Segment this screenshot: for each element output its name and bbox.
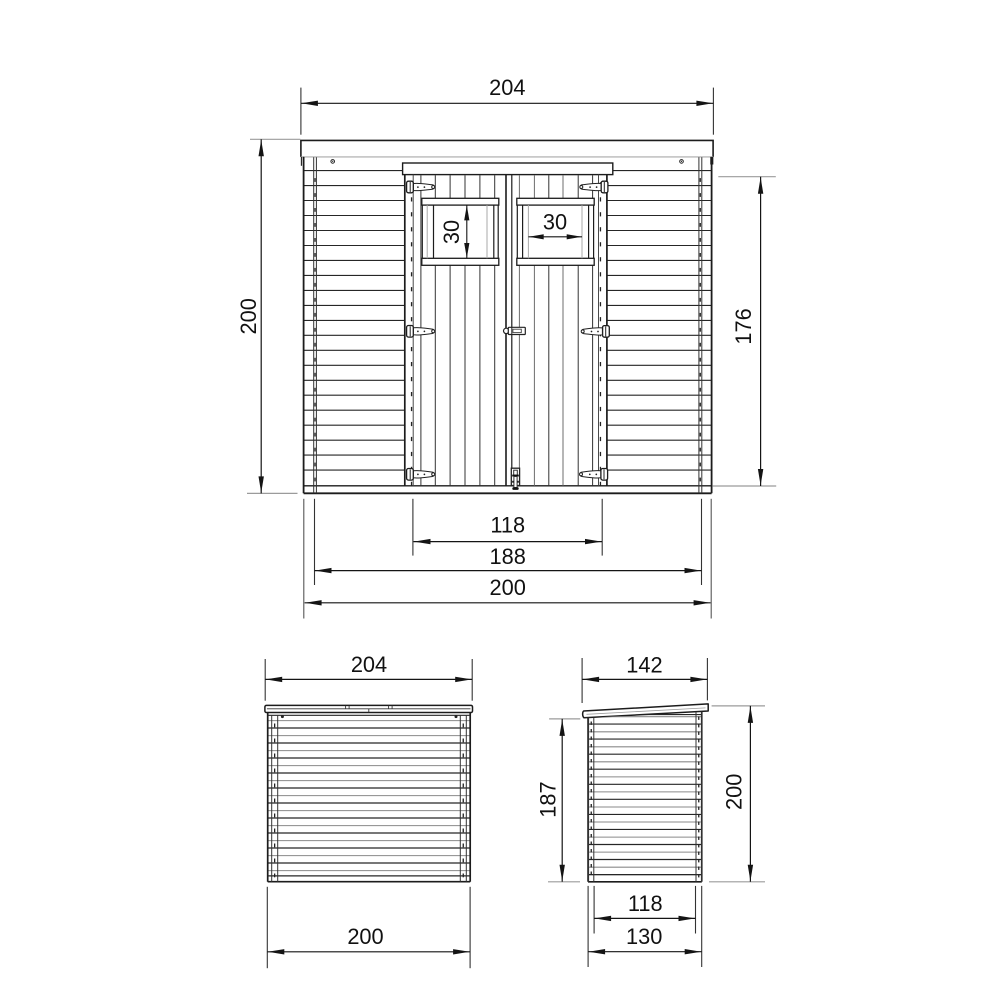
svg-text:204: 204 xyxy=(351,652,387,677)
svg-text:30: 30 xyxy=(439,220,464,244)
svg-text:187: 187 xyxy=(536,781,561,817)
svg-text:176: 176 xyxy=(731,308,756,344)
svg-text:30: 30 xyxy=(543,209,567,234)
svg-text:118: 118 xyxy=(490,513,525,538)
svg-text:200: 200 xyxy=(722,774,747,810)
svg-text:200: 200 xyxy=(347,924,383,949)
svg-text:200: 200 xyxy=(236,298,261,334)
svg-text:130: 130 xyxy=(626,924,662,949)
svg-text:200: 200 xyxy=(490,575,526,600)
svg-text:204: 204 xyxy=(489,75,525,100)
svg-text:118: 118 xyxy=(628,891,663,916)
svg-text:188: 188 xyxy=(490,544,526,569)
svg-text:142: 142 xyxy=(626,653,662,678)
